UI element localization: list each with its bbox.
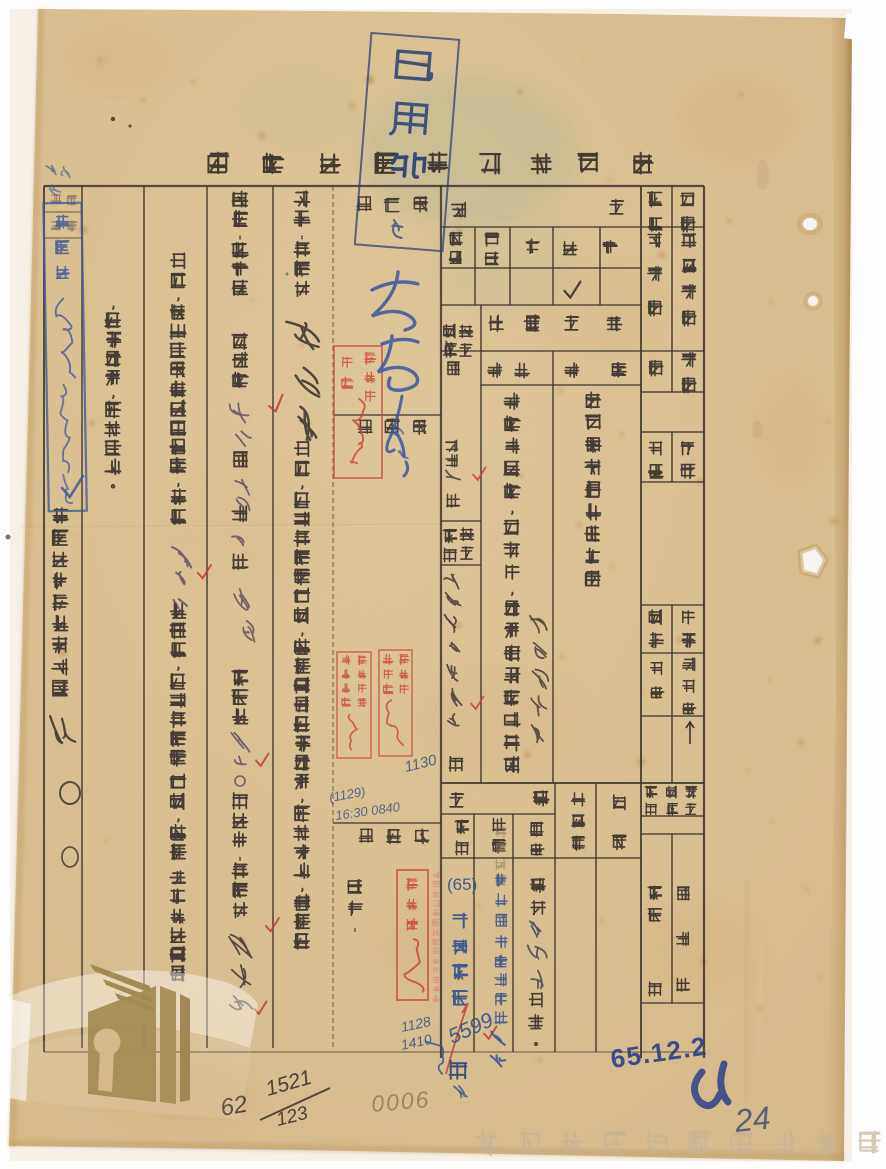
svg-text:(65): (65) xyxy=(447,875,477,894)
svg-text:0006: 0006 xyxy=(370,1086,431,1117)
